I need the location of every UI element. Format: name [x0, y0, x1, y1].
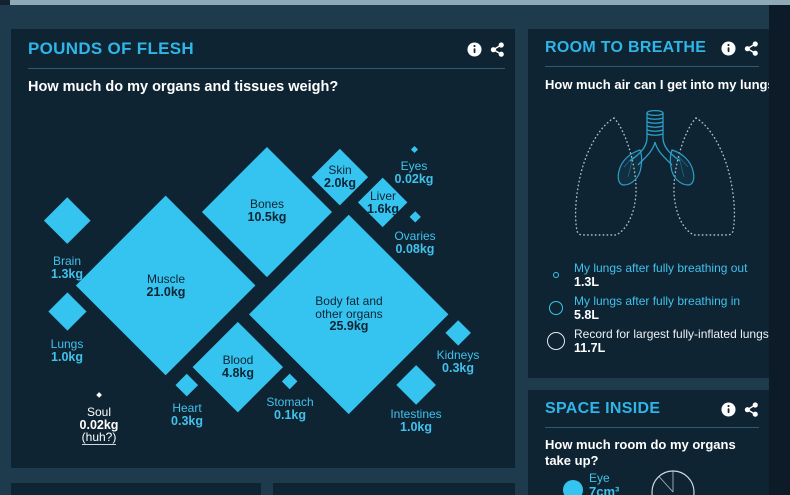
- organ-label-ovaries: Ovaries0.08kg: [355, 230, 475, 255]
- organ-diamond-soul: [96, 392, 102, 398]
- organ-weight: 21.0kg: [106, 286, 226, 299]
- organ-diamond-brain: [44, 197, 90, 243]
- space-question: How much room do my organs take up?: [528, 428, 755, 469]
- organ-diamond-lungs: [48, 292, 86, 330]
- large-circle-icon: [541, 332, 571, 350]
- legend-value: 1.3L: [574, 275, 747, 289]
- small-circle-icon: [541, 272, 571, 278]
- info-icon[interactable]: [721, 41, 736, 56]
- organ-name: Eyes: [354, 160, 474, 173]
- organ-name: Liver: [323, 190, 443, 203]
- organ-weight: 10.5kg: [207, 211, 327, 224]
- organ-label-eyes: Eyes0.02kg: [354, 160, 474, 185]
- organ-weight: 4.8kg: [178, 367, 298, 380]
- organ-weight: 25.9kg: [289, 320, 409, 333]
- organ-name: Intestines: [356, 408, 476, 421]
- organ-name: Ovaries: [355, 230, 475, 243]
- lungs-illustration: [570, 109, 740, 239]
- organ-weight: 0.08kg: [355, 243, 475, 256]
- soul-huh-link[interactable]: (huh?): [82, 430, 117, 445]
- organ-weight: 0.1kg: [230, 409, 350, 422]
- organ-diamond-kidneys: [445, 320, 471, 346]
- top-corner: [0, 0, 10, 5]
- organ-weight: 1.6kg: [323, 203, 443, 216]
- legend-row-breathing-out: My lungs after fully breathing out 1.3L: [541, 262, 747, 289]
- organ-name: Brain: [7, 255, 127, 268]
- medium-circle-icon: [541, 301, 571, 315]
- space-panel-title: SPACE INSIDE: [545, 400, 660, 418]
- organ-label-lungs: Lungs1.0kg: [7, 338, 127, 363]
- organ-label-bones: Bones10.5kg: [207, 198, 327, 223]
- legend-value: 11.7L: [574, 341, 769, 355]
- organ-name: Stomach: [230, 396, 350, 409]
- organ-diamond-eyes: [410, 145, 417, 152]
- body-volume-bubble-outline: [651, 470, 695, 495]
- organ-weight: 0.02kg: [354, 173, 474, 186]
- space-inside-panel: SPACE INSIDE How much room do my organs …: [528, 390, 769, 495]
- organ-label-body-fat-and: Body fat andother organs25.9kg: [289, 295, 409, 333]
- organ-weight: 0.3kg: [398, 362, 518, 375]
- legend-row-record: Record for largest fully-inflated lungs …: [541, 328, 769, 355]
- legend-label: My lungs after fully breathing in: [574, 295, 740, 308]
- bottom-left-panel: [11, 483, 261, 495]
- breathe-header-icons: [721, 41, 759, 56]
- eye-volume-bubble: [563, 480, 583, 495]
- info-icon[interactable]: [721, 402, 736, 417]
- space-panel-header: SPACE INSIDE: [528, 390, 769, 418]
- breathe-panel-title: ROOM TO BREATHE: [545, 39, 706, 57]
- legend-label: Record for largest fully-inflated lungs: [574, 328, 769, 341]
- organ-label-soul: Soul0.02kg(huh?): [39, 406, 159, 444]
- organ-name: Blood: [178, 354, 298, 367]
- right-edge-column: [769, 0, 790, 495]
- room-to-breathe-panel: ROOM TO BREATHE How much air can I get i…: [528, 29, 769, 378]
- organ-name: Bones: [207, 198, 327, 211]
- bottom-mid-panel: [273, 483, 515, 495]
- share-icon[interactable]: [744, 41, 759, 56]
- breathe-question: How much air can I get into my lungs?: [528, 67, 769, 93]
- organ-weight: 1.0kg: [356, 421, 476, 434]
- pounds-of-flesh-panel: POUNDS OF FLESH How much do my organs an…: [11, 29, 515, 468]
- organ-name: Kidneys: [398, 349, 518, 362]
- share-icon[interactable]: [744, 402, 759, 417]
- organ-volume-value: 7cm³: [589, 485, 619, 495]
- organ-name: Lungs: [7, 338, 127, 351]
- eye-volume-label: Eye 7cm³: [589, 472, 619, 495]
- organ-weight: 1.3kg: [7, 268, 127, 281]
- organ-weight: 1.0kg: [7, 351, 127, 364]
- legend-label: My lungs after fully breathing out: [574, 262, 747, 275]
- organ-name: Soul: [39, 406, 159, 419]
- organ-diamond-layer: Muscle21.0kgBones10.5kgBody fat andother…: [11, 29, 515, 468]
- space-header-icons: [721, 402, 759, 417]
- organ-label-blood: Blood4.8kg: [178, 354, 298, 379]
- legend-row-breathing-in: My lungs after fully breathing in 5.8L: [541, 295, 740, 322]
- organ-label-intestines: Intestines1.0kg: [356, 408, 476, 433]
- organ-label-stomach: Stomach0.1kg: [230, 396, 350, 421]
- legend-value: 5.8L: [574, 308, 740, 322]
- page: POUNDS OF FLESH How much do my organs an…: [0, 0, 790, 495]
- breathe-panel-header: ROOM TO BREATHE: [528, 29, 769, 57]
- top-strip: [10, 0, 790, 5]
- organ-label-brain: Brain1.3kg: [7, 255, 127, 280]
- organ-label-kidneys: Kidneys0.3kg: [398, 349, 518, 374]
- organ-label-liver: Liver1.6kg: [323, 190, 443, 215]
- organ-name: Body fat and: [289, 295, 409, 308]
